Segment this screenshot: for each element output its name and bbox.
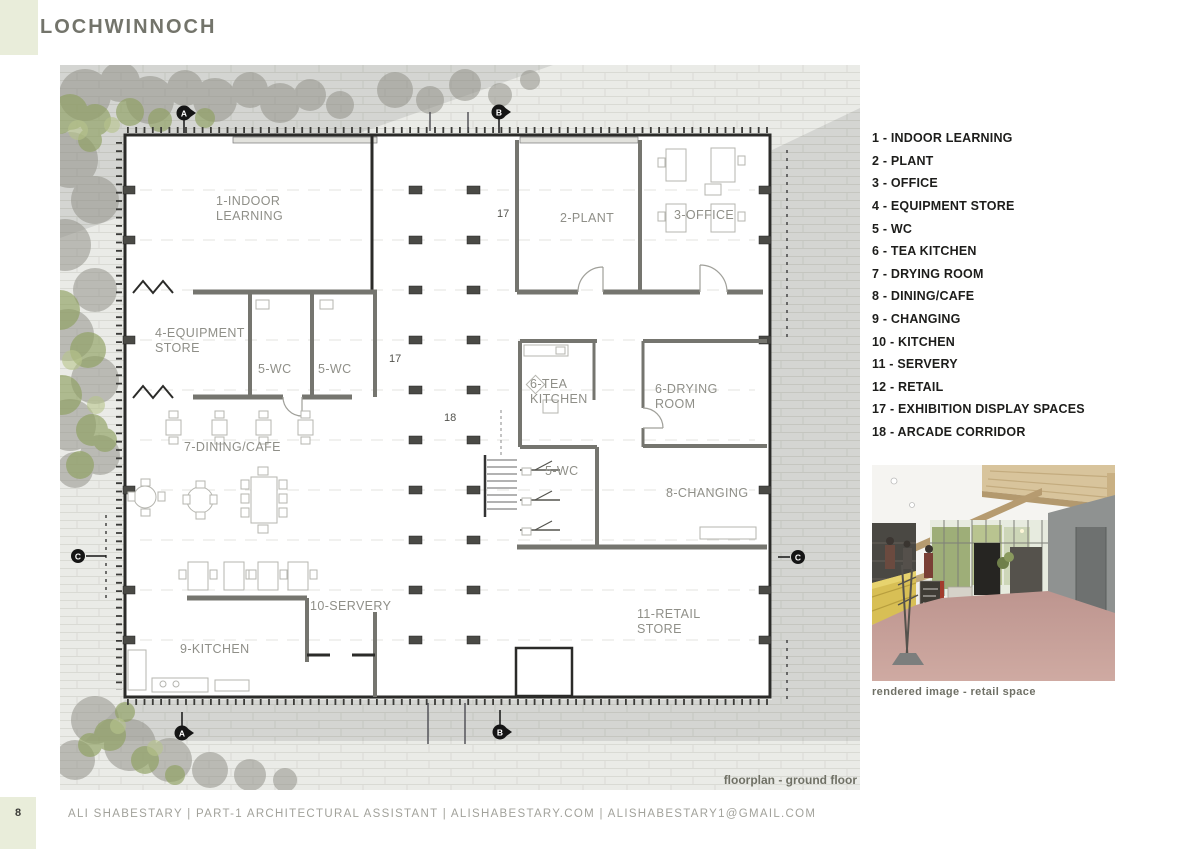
room-label-wc-2: 5-WC <box>318 362 352 376</box>
legend-item: 2 - PLANT <box>872 150 1192 173</box>
legend-item: 5 - WC <box>872 217 1192 240</box>
room-label-kitchen: 9-KITCHEN <box>180 642 250 656</box>
zone-number-18: 18 <box>444 412 456 424</box>
plan-caption: floorplan - ground floor <box>724 773 858 787</box>
photo-thumbnail <box>872 465 1115 681</box>
svg-text:A: A <box>179 729 185 739</box>
svg-text:STORE: STORE <box>637 622 682 636</box>
zone-number-17b: 17 <box>389 353 401 365</box>
svg-text:ROOM: ROOM <box>655 397 696 411</box>
svg-text:B: B <box>496 108 502 118</box>
floorplan-drawing: A B A B C <box>60 65 860 790</box>
photo-caption: rendered image - retail space <box>872 686 1036 698</box>
legend-list: 1 - INDOOR LEARNING 2 - PLANT 3 - OFFICE… <box>872 127 1192 443</box>
zone-number-17a: 17 <box>497 208 509 220</box>
svg-text:LEARNING: LEARNING <box>216 209 283 223</box>
room-label-drying-room: 6-DRYING <box>655 382 718 396</box>
room-label-servery: 10-SERVERY <box>310 599 392 613</box>
room-label-retail-store: 11-RETAIL <box>637 607 701 621</box>
room-label-wc-1: 5-WC <box>258 362 292 376</box>
svg-text:A: A <box>181 109 187 119</box>
room-label-plant: 2-PLANT <box>560 211 614 225</box>
room-label-changing: 8-CHANGING <box>666 486 748 500</box>
legend-item: 18 - ARCADE CORRIDOR <box>872 421 1192 444</box>
room-label-office: 3-OFFICE <box>674 208 734 222</box>
legend-item: 10 - KITCHEN <box>872 330 1192 353</box>
legend-item: 12 - RETAIL <box>872 376 1192 399</box>
legend-item: 9 - CHANGING <box>872 308 1192 331</box>
room-label-indoor-learning: 1-INDOOR <box>216 194 280 208</box>
legend-item: 1 - INDOOR LEARNING <box>872 127 1192 150</box>
legend-item: 4 - EQUIPMENT STORE <box>872 195 1192 218</box>
page-number: 8 <box>0 807 36 819</box>
legend-item: 6 - TEA KITCHEN <box>872 240 1192 263</box>
floorplan-canvas: A B A B C <box>60 65 860 790</box>
legend-item: 3 - OFFICE <box>872 172 1192 195</box>
portfolio-page: LOCHWINNOCH <box>0 0 1200 849</box>
svg-text:STORE: STORE <box>155 341 200 355</box>
room-label-equipment-store: 4-EQUIPMENT <box>155 326 245 340</box>
legend-item: 17 - EXHIBITION DISPLAY SPACES <box>872 398 1192 421</box>
room-legend: 1 - INDOOR LEARNING 2 - PLANT 3 - OFFICE… <box>872 127 1192 443</box>
accent-color-block <box>0 0 38 55</box>
room-label-wc-3: 5-WC <box>545 464 579 478</box>
page-title: LOCHWINNOCH <box>40 16 216 39</box>
room-label-dining-cafe: 7-DINING/CAFE <box>184 440 281 454</box>
legend-item: 8 - DINING/CAFE <box>872 285 1192 308</box>
svg-text:C: C <box>795 553 801 563</box>
legend-item: 11 - SERVERY <box>872 353 1192 376</box>
footer-accent-strip <box>0 797 36 849</box>
room-label-tea-kitchen: 6-TEA <box>530 377 568 391</box>
retail-space-render <box>872 465 1115 681</box>
legend-item: 7 - DRYING ROOM <box>872 263 1192 286</box>
svg-text:B: B <box>497 728 503 738</box>
footer-credits: ALI SHABESTARY | PART-1 ARCHITECTURAL AS… <box>68 808 816 820</box>
svg-text:KITCHEN: KITCHEN <box>530 392 588 406</box>
svg-text:C: C <box>75 552 81 562</box>
